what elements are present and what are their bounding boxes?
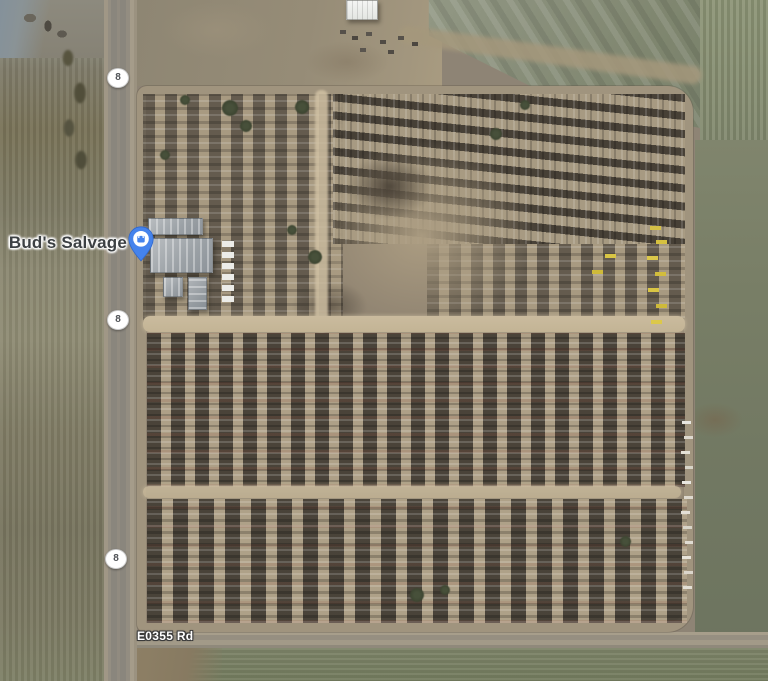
- building: [163, 277, 183, 297]
- car-columns-middle: [147, 333, 685, 487]
- salvage-yard: [137, 86, 693, 632]
- tree: [410, 588, 424, 602]
- main-building: [150, 238, 213, 273]
- route-shield-label: 8: [115, 315, 121, 325]
- cross-dirt-lane: [143, 486, 681, 498]
- tree: [295, 100, 309, 114]
- highway-8-road: [104, 0, 137, 681]
- satellite-map[interactable]: 8 8 8 Bud's Salvage E0355 Rd: [0, 0, 768, 681]
- crop-rows-field: [700, 0, 768, 145]
- road-label-e0355: E0355 Rd: [137, 629, 193, 643]
- tree: [620, 536, 631, 547]
- tree: [180, 95, 190, 105]
- tree: [222, 100, 238, 116]
- tree-line: [56, 38, 94, 178]
- field-bottom: [137, 648, 768, 681]
- tree: [490, 128, 502, 140]
- poi-marker[interactable]: [128, 226, 154, 262]
- tree: [240, 120, 252, 132]
- building: [148, 218, 203, 235]
- satellite-imagery: [0, 0, 768, 681]
- e0355-road: [137, 632, 768, 648]
- white-building: [346, 0, 378, 20]
- building: [188, 277, 207, 310]
- white-vehicles-row: [682, 421, 691, 424]
- tree: [520, 100, 530, 110]
- tree: [308, 250, 322, 264]
- dirt-corner: [137, 648, 222, 681]
- route-shield-label: 8: [113, 554, 119, 564]
- tree: [440, 585, 450, 595]
- route-shield-label: 8: [115, 73, 121, 83]
- field-top: [137, 0, 442, 86]
- junk-pile: [347, 154, 432, 219]
- dirt-lane-vertical: [315, 90, 328, 332]
- shopping-bag-pin-icon: [128, 226, 154, 262]
- poi-label-buds-salvage[interactable]: Bud's Salvage: [0, 233, 127, 253]
- route-shield-8-top: 8: [107, 68, 129, 88]
- tree: [160, 150, 170, 160]
- tree: [287, 225, 297, 235]
- field-right: [695, 140, 768, 660]
- school-buses: [650, 226, 661, 230]
- main-dirt-lane: [143, 316, 685, 332]
- route-shield-8-bottom: 8: [105, 549, 127, 569]
- trailer-row: [222, 240, 234, 302]
- scattered-junk: [340, 30, 346, 34]
- car-columns-bottom: [147, 499, 687, 623]
- route-shield-8-middle: 8: [107, 310, 129, 330]
